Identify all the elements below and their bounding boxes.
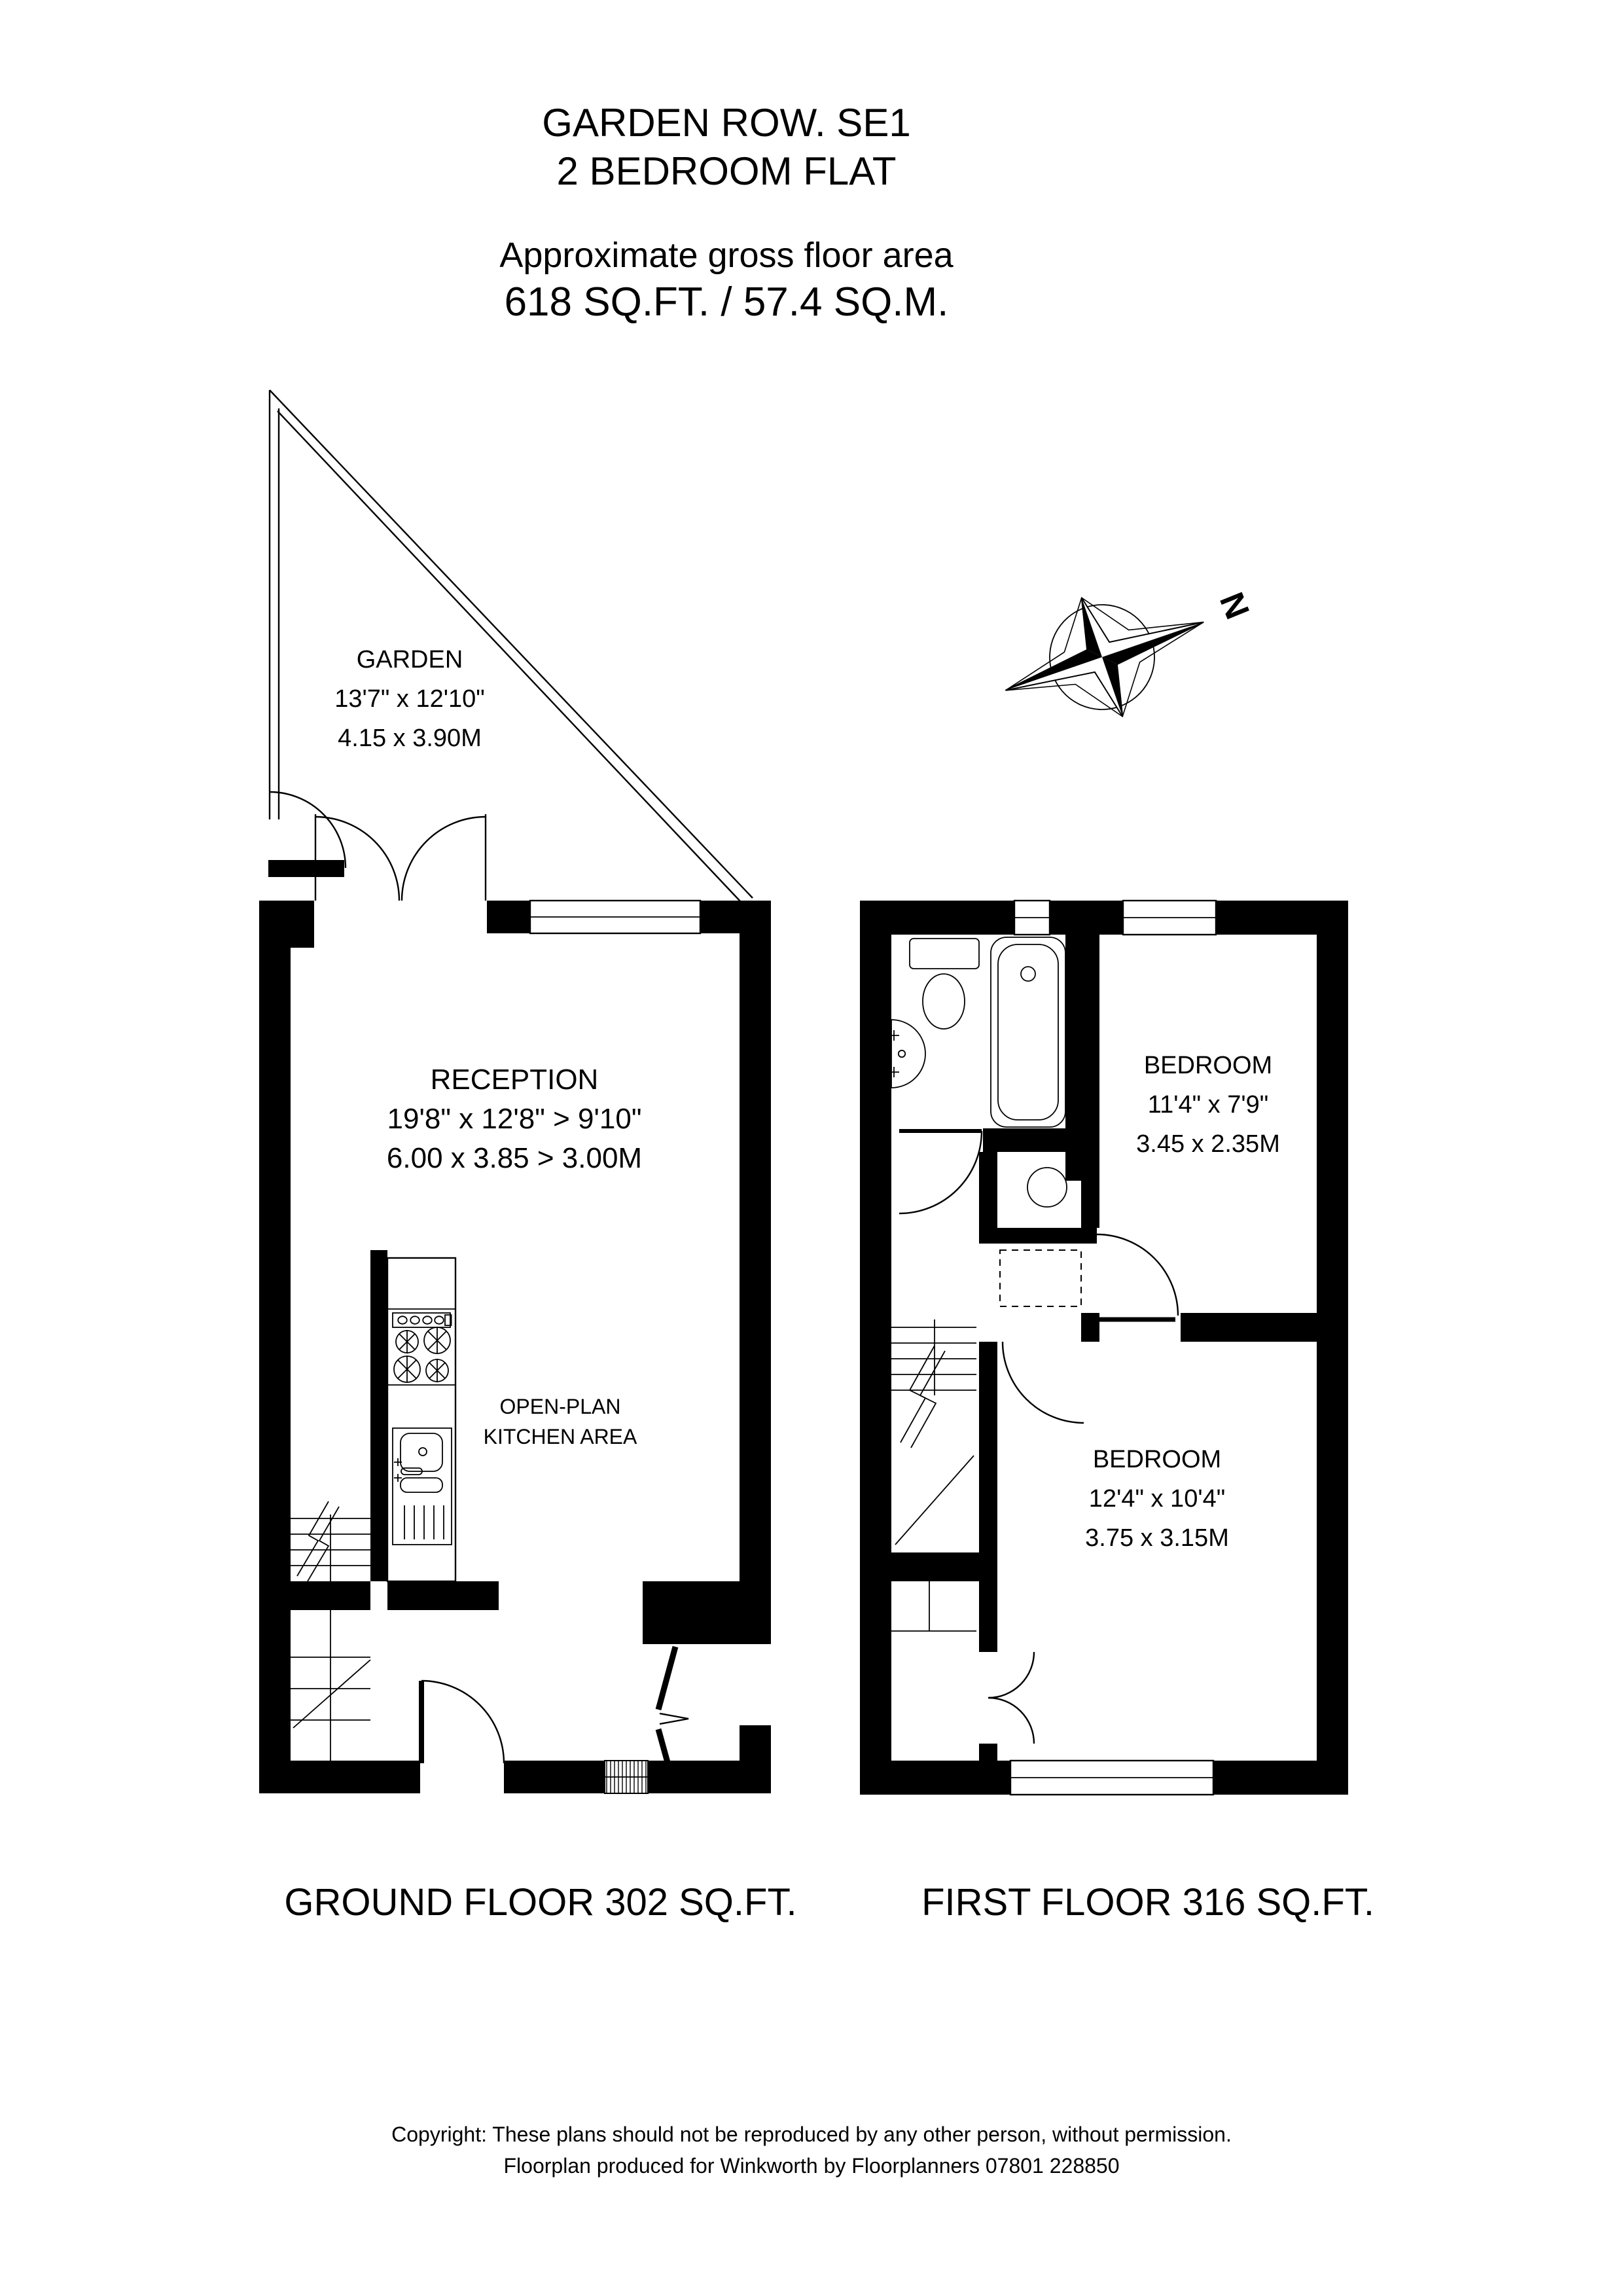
garden-dims-imperial: 13'7" x 12'10" [334, 685, 485, 713]
north-label: N [1212, 587, 1257, 624]
gross-area-value: 618 SQ.FT. / 57.4 SQ.M. [505, 279, 949, 325]
bedroom2-window [1010, 1761, 1213, 1795]
cylinder-cupboard [1027, 1168, 1067, 1207]
reception-label: RECEPTION [431, 1064, 599, 1096]
bedroom2-label: BEDROOM [1093, 1446, 1221, 1473]
compass-rose: N [985, 563, 1256, 750]
toilet-icon [910, 939, 979, 1029]
garden-dims-metric: 4.15 x 3.90M [338, 725, 482, 752]
loft-hatch-dashed [1000, 1250, 1081, 1306]
reception-dims-metric: 6.00 x 3.85 > 3.00M [387, 1142, 642, 1174]
footer-copyright: Copyright: These plans should not be rep… [391, 2123, 1232, 2178]
copyright-line2: Floorplan produced for Winkworth by Floo… [504, 2154, 1120, 2178]
kitchen-unit [387, 1258, 455, 1581]
bathtub-icon [991, 937, 1065, 1127]
reception-window [530, 901, 700, 933]
bedroom1-label: BEDROOM [1144, 1052, 1272, 1079]
bathroom-door [899, 1131, 982, 1213]
closet-shelves [891, 1581, 976, 1631]
stairs-first [891, 1319, 976, 1545]
entrance-threshold [605, 1761, 648, 1793]
kitchen-label-line1: OPEN-PLAN [500, 1395, 621, 1418]
kitchen-label-line2: KITCHEN AREA [484, 1425, 637, 1448]
ground-floor-walls [259, 901, 771, 1793]
bedroom1-dims-imperial: 11'4" x 7'9" [1148, 1091, 1268, 1119]
garden-area: GARDEN 13'7" x 12'10" 4.15 x 3.90M [268, 390, 753, 902]
floorplan-canvas: GARDEN ROW. SE1 2 BEDROOM FLAT Approxima… [0, 0, 1623, 2296]
floorplan-page: GARDEN ROW. SE1 2 BEDROOM FLAT Approxima… [0, 0, 1623, 2296]
ground-floor-caption: GROUND FLOOR 302 SQ.FT. [284, 1881, 796, 1924]
bedroom1-door [1097, 1234, 1178, 1319]
garden-label: GARDEN [357, 646, 463, 673]
garden-gate-wall [268, 860, 344, 877]
basin-icon [889, 1020, 925, 1088]
bedroom2-door [1003, 1342, 1084, 1423]
reception-dims-imperial: 19'8" x 12'8" > 9'10" [387, 1103, 642, 1135]
french-doors [315, 814, 486, 901]
copyright-line1: Copyright: These plans should not be rep… [391, 2123, 1232, 2146]
ground-floor-plan: GARDEN 13'7" x 12'10" 4.15 x 3.90M [259, 390, 797, 1924]
compass-north-icon [985, 563, 1224, 750]
page-title-line2: 2 BEDROOM FLAT [557, 149, 897, 193]
bedroom1-window [1123, 901, 1216, 935]
first-floor-caption: FIRST FLOOR 316 SQ.FT. [921, 1881, 1374, 1924]
bedroom2-dims-metric: 3.75 x 3.15M [1085, 1524, 1229, 1552]
first-floor-plan: BEDROOM 11'4" x 7'9" 3.45 x 2.35M BEDROO… [860, 901, 1374, 1924]
page-title-line1: GARDEN ROW. SE1 [542, 101, 910, 145]
garden-gate-swing [270, 792, 346, 868]
bathroom-window [1014, 901, 1050, 935]
wardrobe-doors [988, 1652, 1034, 1744]
gross-area-caption: Approximate gross floor area [499, 236, 954, 275]
title-block: GARDEN ROW. SE1 2 BEDROOM FLAT Approxima… [499, 101, 954, 325]
bedroom1-dims-metric: 3.45 x 2.35M [1136, 1130, 1280, 1158]
hall-door [421, 1681, 504, 1763]
bedroom2-dims-imperial: 12'4" x 10'4" [1089, 1485, 1225, 1513]
stairs-ground [291, 1501, 370, 1761]
